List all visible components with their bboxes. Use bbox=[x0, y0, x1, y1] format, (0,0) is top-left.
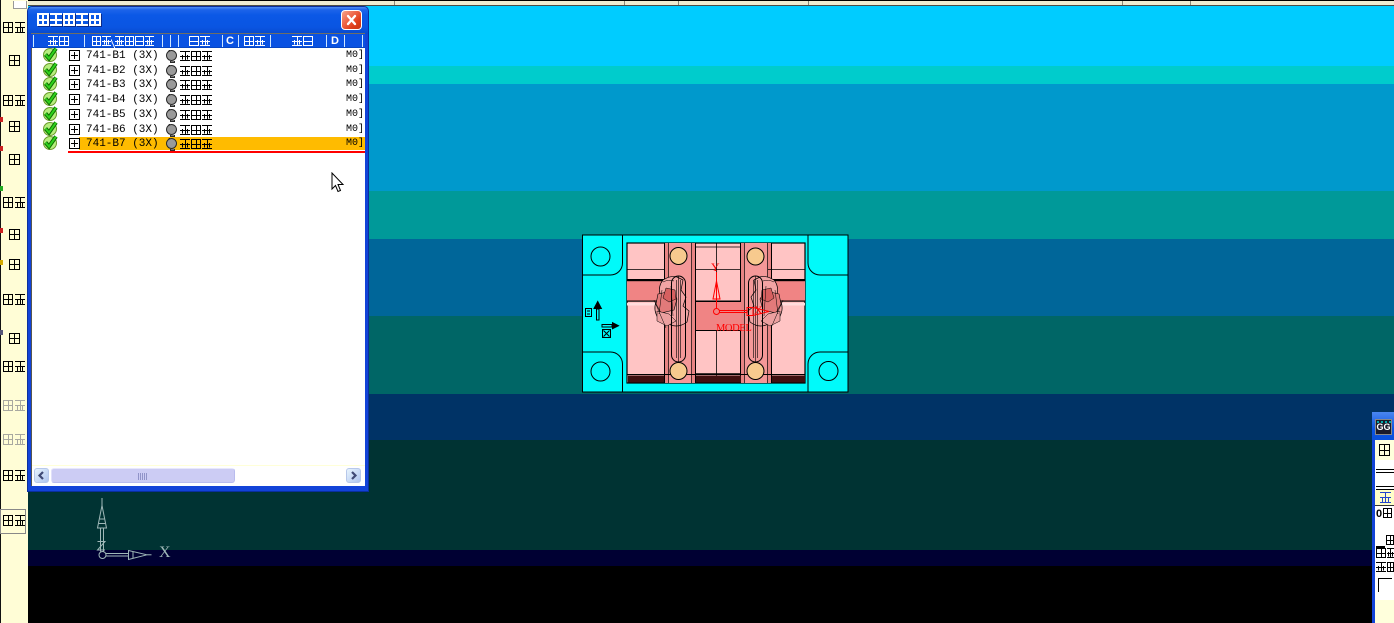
svg-text:X: X bbox=[159, 544, 171, 561]
svg-text:Y: Y bbox=[711, 260, 720, 274]
svg-text:MODEL: MODEL bbox=[716, 323, 751, 334]
svg-text:X: X bbox=[754, 303, 763, 317]
